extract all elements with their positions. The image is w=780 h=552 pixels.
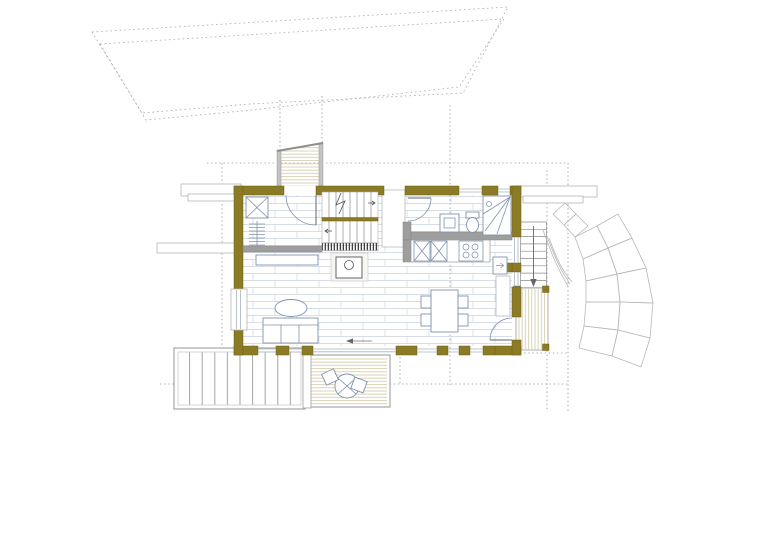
- fan-step-o5: [612, 330, 650, 367]
- west-steps-deck: [174, 348, 305, 409]
- retaining-wall-ne-1: [513, 186, 597, 197]
- window-south-3: [417, 349, 437, 352]
- wall-right-3: [512, 340, 521, 355]
- window-north-1: [459, 189, 482, 192]
- fan-step-o1: [597, 214, 632, 248]
- entry-walkway: [277, 143, 323, 186]
- toilet-bowl: [467, 218, 479, 233]
- window-east-2: [515, 272, 519, 287]
- deck-separator: [303, 351, 311, 408]
- wall-right-nib: [507, 263, 512, 272]
- wall-top-4: [482, 186, 498, 195]
- wall-left-1: [234, 186, 243, 290]
- window-west-frame: [231, 289, 247, 330]
- retaining-wall-west: [157, 243, 236, 253]
- partition-hall-living: [243, 246, 322, 252]
- washbasin: [440, 214, 459, 232]
- fan-step-i5: [586, 274, 620, 302]
- stove-flue: [345, 261, 354, 270]
- sofa: [263, 318, 318, 343]
- wall-right-pier: [512, 263, 521, 272]
- walkway-rail-right: [319, 143, 323, 186]
- sideboard: [256, 255, 318, 265]
- fan-step-o4: [618, 302, 653, 338]
- wall-bottom-pier2: [459, 346, 470, 355]
- wall-bottom-3: [302, 346, 313, 355]
- floor-plan-drawing: [0, 0, 780, 552]
- fan-step-i3: [575, 226, 608, 259]
- landing-post-ne: [543, 286, 550, 293]
- wall-top-3: [405, 186, 459, 195]
- wall-right-2: [512, 287, 521, 317]
- floor-plan-canvas: [0, 0, 780, 552]
- dining-chair-1: [421, 296, 431, 308]
- sliding-glass-door: [313, 349, 396, 352]
- kitchen-counter: [411, 240, 490, 262]
- wall-bottom-pier3: [483, 346, 495, 355]
- coffee-table: [275, 300, 307, 317]
- house: [231, 186, 521, 355]
- fan-step-i4: [583, 248, 617, 281]
- retaining-wall-ne-2: [523, 196, 583, 203]
- south-terrace: [303, 351, 390, 408]
- road-inner-edge: [100, 19, 504, 120]
- partition-kitchen-end: [403, 240, 411, 262]
- east-counter: [496, 276, 510, 316]
- stair-landing-edge: [322, 218, 378, 222]
- partition-bath-left: [403, 222, 411, 240]
- landing-boards: [518, 289, 546, 349]
- dining-chair-3: [458, 296, 468, 308]
- fan-curve-1: [549, 238, 572, 282]
- window-south-5: [470, 349, 483, 352]
- window-north-2: [498, 189, 510, 192]
- east-stair: [514, 222, 550, 351]
- wall-right-1: [512, 186, 521, 237]
- fan-step-i1: [553, 203, 576, 225]
- garden-steps-fan: [543, 203, 653, 367]
- wall-bottom-2: [276, 346, 289, 355]
- site-boundary-road: [92, 7, 508, 120]
- fan-step-o3: [617, 268, 653, 303]
- dining-chair-4: [458, 314, 468, 326]
- stair-down-arrow-head: [530, 279, 536, 287]
- window-east-1: [515, 237, 519, 263]
- wall-bottom-pier1: [437, 346, 448, 355]
- dining-table: [431, 290, 458, 332]
- staircase: [322, 192, 378, 251]
- fan-step-o2: [608, 238, 646, 274]
- fan-step-i7: [579, 326, 618, 356]
- fan-curve-2: [546, 234, 570, 284]
- stair-cut-strip: [322, 243, 378, 251]
- stair-void-wall: [382, 190, 405, 247]
- fan-step-i6: [584, 302, 620, 330]
- west-steps-treads: [178, 352, 301, 405]
- dining-chair-2: [421, 314, 431, 326]
- wall-left-2: [234, 329, 243, 355]
- walkway-rail-left: [277, 150, 281, 186]
- landing-post-se: [543, 344, 550, 351]
- wall-bottom-4: [396, 346, 417, 355]
